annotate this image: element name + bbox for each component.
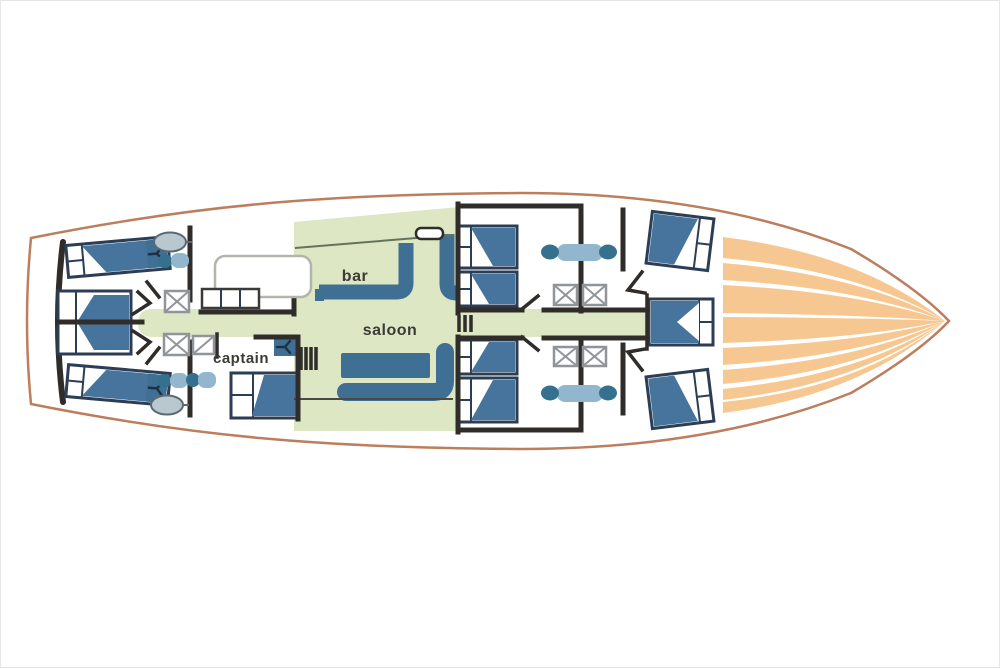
- bar-label: bar: [342, 268, 368, 285]
- shower-box-icon: [554, 285, 577, 305]
- bed: [457, 378, 517, 422]
- washbasin-unit-icon: [541, 244, 617, 261]
- toilet-icon: [158, 253, 189, 268]
- shower-box-icon: [193, 336, 214, 354]
- shower-box-icon: [583, 347, 606, 366]
- galley-cabinets: [202, 289, 259, 308]
- saloon-table: [341, 353, 430, 378]
- bed: [457, 340, 517, 374]
- galley-appliance: [315, 289, 324, 301]
- bow-bed-center: [649, 299, 713, 345]
- bow-bed-port: [646, 211, 714, 270]
- washbasin-unit-icon: [541, 385, 617, 402]
- deck-plan-canvas: bar saloon captain: [0, 0, 1000, 668]
- skylight-window: [416, 228, 443, 239]
- yacht-deck-plan: bar saloon captain: [1, 1, 1000, 668]
- shower-box-icon: [554, 347, 577, 366]
- captain-label: captain: [213, 350, 269, 367]
- toilet-icon: [157, 373, 188, 388]
- bow-bed-starboard: [646, 369, 714, 428]
- shower-box-icon: [165, 291, 189, 312]
- corridor-fwd: [459, 309, 647, 337]
- bed: [457, 272, 517, 306]
- shower-box-icon: [583, 285, 606, 305]
- shower-box-icon: [164, 334, 189, 355]
- bed: [457, 226, 517, 268]
- saloon-label: saloon: [363, 322, 418, 339]
- toilet-icon: [186, 372, 216, 388]
